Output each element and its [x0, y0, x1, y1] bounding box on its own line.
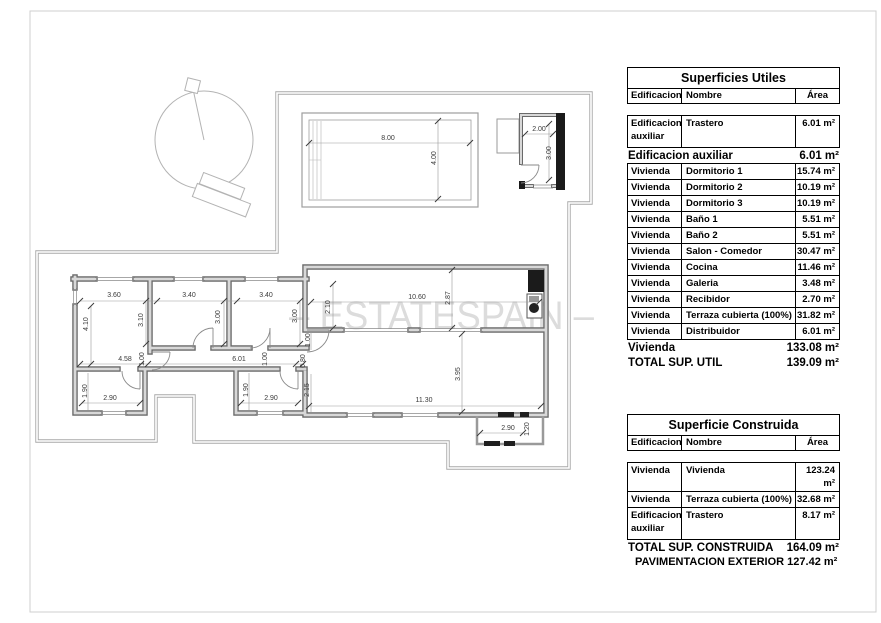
dimension-label: 2.15	[304, 383, 311, 397]
utiles-table: Superficies Utiles Edificacion Nombre Ár…	[627, 67, 840, 370]
shed-corner-dark	[519, 181, 525, 189]
dimension-label: 10.60	[408, 294, 426, 301]
cell-nombre: Recibidor	[681, 292, 795, 307]
table-row: Edificacion auxiliar Trastero 6.01 m²	[628, 116, 839, 147]
cell-nombre: Dormitorio 2	[681, 180, 795, 195]
subtotal-label: Vivienda	[628, 342, 675, 354]
cell-area: 11.46 m²	[795, 260, 839, 275]
subtotal-row: Vivienda 133.08 m²	[627, 340, 840, 355]
cell-area: 10.19 m²	[795, 180, 839, 195]
round-pool	[155, 78, 253, 217]
cell-area: 15.74 m²	[795, 164, 839, 179]
table-row: Vivienda Terraza cubierta (100%) 32.68 m…	[628, 491, 839, 507]
dimension-label: 1.90	[243, 383, 250, 397]
cell-edificacion: Vivienda	[628, 292, 681, 307]
dimension-label: 3.00	[215, 310, 222, 324]
table-row: Vivienda Cocina 11.46 m²	[628, 259, 839, 275]
total-area: 139.09 m²	[787, 357, 839, 369]
dimension-label: 3.00	[546, 146, 553, 160]
total-row: TOTAL SUP. CONSTRUIDA 164.09 m²	[627, 540, 840, 555]
cell-nombre: Trastero	[681, 508, 795, 539]
shed-door-arc	[521, 165, 539, 183]
cell-edificacion: Vivienda	[628, 308, 681, 323]
dimension-label: 1.00	[262, 352, 269, 366]
dimension-label: 1.20	[524, 422, 531, 436]
subtotal-row: Edificacion auxiliar 6.01 m²	[627, 148, 840, 163]
cell-nombre: Dormitorio 1	[681, 164, 795, 179]
dimension-label: 2.90	[501, 425, 515, 432]
cell-edificacion: Vivienda	[628, 164, 681, 179]
dimension-label: 2.10	[325, 300, 332, 314]
dimension-label: 1.00	[305, 333, 312, 347]
table-row: Vivienda Dormitorio 1 15.74 m²	[628, 164, 839, 179]
table-row: Edificacion auxiliar Trastero 8.17 m²	[628, 507, 839, 539]
dimension-label: 4.00	[431, 151, 438, 165]
cell-area: 2.70 m²	[795, 292, 839, 307]
total-label: TOTAL SUP. UTIL	[628, 357, 722, 369]
dimension-label: 2.90	[264, 395, 278, 402]
table-row: Vivienda Baño 1 5.51 m²	[628, 211, 839, 227]
cell-nombre: Salon - Comedor	[681, 244, 795, 259]
terrace-fixtures	[527, 270, 544, 318]
table-row: Vivienda Baño 2 5.51 m²	[628, 227, 839, 243]
cell-edificacion: Vivienda	[628, 212, 681, 227]
construida-title: Superficie Construida	[627, 414, 840, 436]
cell-edificacion: Vivienda	[628, 260, 681, 275]
table-row: Vivienda Dormitorio 3 10.19 m²	[628, 195, 839, 211]
construida-box: Vivienda Vivienda 123.24 m² Vivienda Ter…	[627, 462, 840, 540]
table-row: Vivienda Salon - Comedor 30.47 m²	[628, 243, 839, 259]
cell-edificacion: Vivienda	[628, 196, 681, 211]
dimension-label: 3.00	[292, 309, 299, 323]
pavimentacion-note: PAVIMENTACION EXTERIOR 127.42 m²	[635, 556, 837, 568]
sink-bowl	[529, 303, 539, 313]
cell-nombre: Vivienda	[681, 463, 795, 491]
construida-header-row: Edificacion Nombre Área	[627, 435, 840, 451]
dimension-label: 2.00	[532, 126, 546, 133]
subtotal-area: 6.01 m²	[799, 150, 839, 162]
cell-nombre: Baño 1	[681, 212, 795, 227]
cell-area: 123.24 m²	[795, 463, 839, 491]
subtotal-label: Edificacion auxiliar	[628, 150, 733, 162]
table-row: Vivienda Distribuidor 6.01 m²	[628, 323, 839, 339]
cell-nombre: Cocina	[681, 260, 795, 275]
cell-area: 5.51 m²	[795, 212, 839, 227]
sink-tap	[529, 296, 539, 302]
pool-arm-line	[193, 89, 204, 140]
construida-table: Superficie Construida Edificacion Nombre…	[627, 414, 840, 555]
shed-annex	[497, 119, 519, 153]
col-header-area: Área	[795, 436, 839, 450]
cell-nombre: Baño 2	[681, 228, 795, 243]
utiles-header-row: Edificacion Nombre Área	[627, 88, 840, 104]
dimension-label: 3.40	[182, 292, 196, 299]
table-row: Vivienda Vivienda 123.24 m²	[628, 463, 839, 491]
dimension-label: 1.00	[139, 352, 146, 366]
cell-nombre: Galeria	[681, 276, 795, 291]
table-row: Vivienda Recibidor 2.70 m²	[628, 291, 839, 307]
col-header-edificacion: Edificacion	[628, 89, 681, 103]
shed-wall-dark	[556, 113, 565, 190]
table-row: Vivienda Galeria 3.48 m²	[628, 275, 839, 291]
plan-sheet: { "watermark": { "text": "– ESTATESPAIN …	[0, 0, 881, 623]
cell-nombre: Distribuidor	[681, 324, 795, 339]
cell-nombre: Terraza cubierta (100%)	[681, 308, 795, 323]
col-header-area: Área	[795, 89, 839, 103]
cell-area: 6.01 m²	[795, 324, 839, 339]
dimension-label: 3.10	[138, 313, 145, 327]
dimension-label: 0.80	[300, 354, 307, 368]
dimension-label: 3.40	[259, 292, 273, 299]
cell-area: 5.51 m²	[795, 228, 839, 243]
cell-area: 6.01 m²	[795, 116, 839, 147]
total-row: TOTAL SUP. UTIL 139.09 m²	[627, 355, 840, 370]
cell-area: 32.68 m²	[795, 492, 839, 507]
dimension-label: 4.58	[118, 356, 132, 363]
pool-arm-box	[185, 78, 201, 94]
dimension-label: 3.95	[455, 367, 462, 381]
cell-edificacion: Vivienda	[628, 244, 681, 259]
cell-edificacion: Vivienda	[628, 180, 681, 195]
utiles-vivienda-box: Vivienda Dormitorio 1 15.74 m² Vivienda …	[627, 163, 840, 340]
dimension-label: 1.90	[82, 384, 89, 398]
cell-edificacion: Edificacion auxiliar	[628, 508, 681, 539]
cell-nombre: Terraza cubierta (100%)	[681, 492, 795, 507]
dimension-label: 6.01	[232, 356, 246, 363]
cell-edificacion: Vivienda	[628, 276, 681, 291]
dimension-label: 2.87	[445, 291, 452, 305]
cell-area: 10.19 m²	[795, 196, 839, 211]
chimney	[528, 270, 544, 292]
cell-edificacion: Vivienda	[628, 324, 681, 339]
dimension-label: 3.60	[107, 292, 121, 299]
cell-edificacion: Edificacion auxiliar	[628, 116, 681, 147]
utiles-aux-box: Edificacion auxiliar Trastero 6.01 m²	[627, 115, 840, 148]
utiles-title: Superficies Utiles	[627, 67, 840, 89]
col-header-nombre: Nombre	[681, 89, 795, 103]
cell-edificacion: Vivienda	[628, 463, 681, 491]
shed-window	[533, 185, 553, 188]
cell-edificacion: Vivienda	[628, 492, 681, 507]
dimension-label: 8.00	[381, 135, 395, 142]
swimming-pool: 8.00 4.00	[302, 113, 478, 207]
dimension-label: 2.90	[103, 395, 117, 402]
cell-edificacion: Vivienda	[628, 228, 681, 243]
cell-area: 3.48 m²	[795, 276, 839, 291]
cell-nombre: Dormitorio 3	[681, 196, 795, 211]
dimension-label: 11.30	[416, 397, 433, 404]
col-header-edificacion: Edificacion	[628, 436, 681, 450]
dimension-label: 4.10	[83, 317, 90, 331]
total-label: TOTAL SUP. CONSTRUIDA	[628, 542, 773, 554]
storage-building: 2.00 3.00	[497, 113, 565, 190]
cell-area: 30.47 m²	[795, 244, 839, 259]
cell-area: 31.82 m²	[795, 308, 839, 323]
table-row: Vivienda Dormitorio 2 10.19 m²	[628, 179, 839, 195]
total-area: 164.09 m²	[787, 542, 839, 554]
cell-nombre: Trastero	[681, 116, 795, 147]
subtotal-area: 133.08 m²	[787, 342, 839, 354]
col-header-nombre: Nombre	[681, 436, 795, 450]
cell-area: 8.17 m²	[795, 508, 839, 539]
table-row: Vivienda Terraza cubierta (100%) 31.82 m…	[628, 307, 839, 323]
